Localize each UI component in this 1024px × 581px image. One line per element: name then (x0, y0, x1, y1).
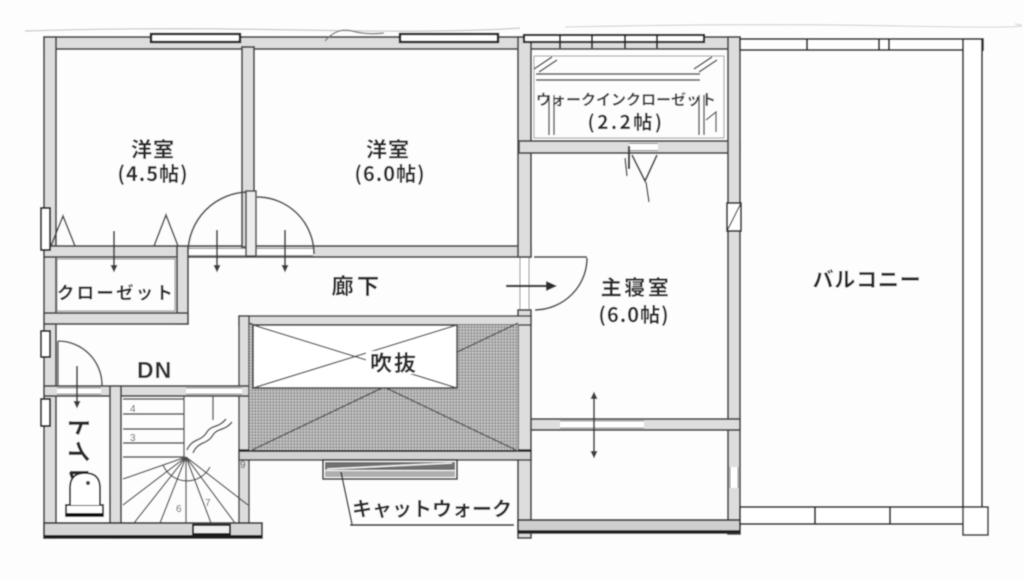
svg-text:9: 9 (240, 460, 246, 471)
svg-text:6: 6 (176, 504, 182, 515)
svg-text:4: 4 (130, 404, 136, 415)
svg-text:3: 3 (130, 433, 136, 444)
svg-text:DN: DN (137, 357, 172, 383)
svg-text:7: 7 (205, 498, 211, 509)
